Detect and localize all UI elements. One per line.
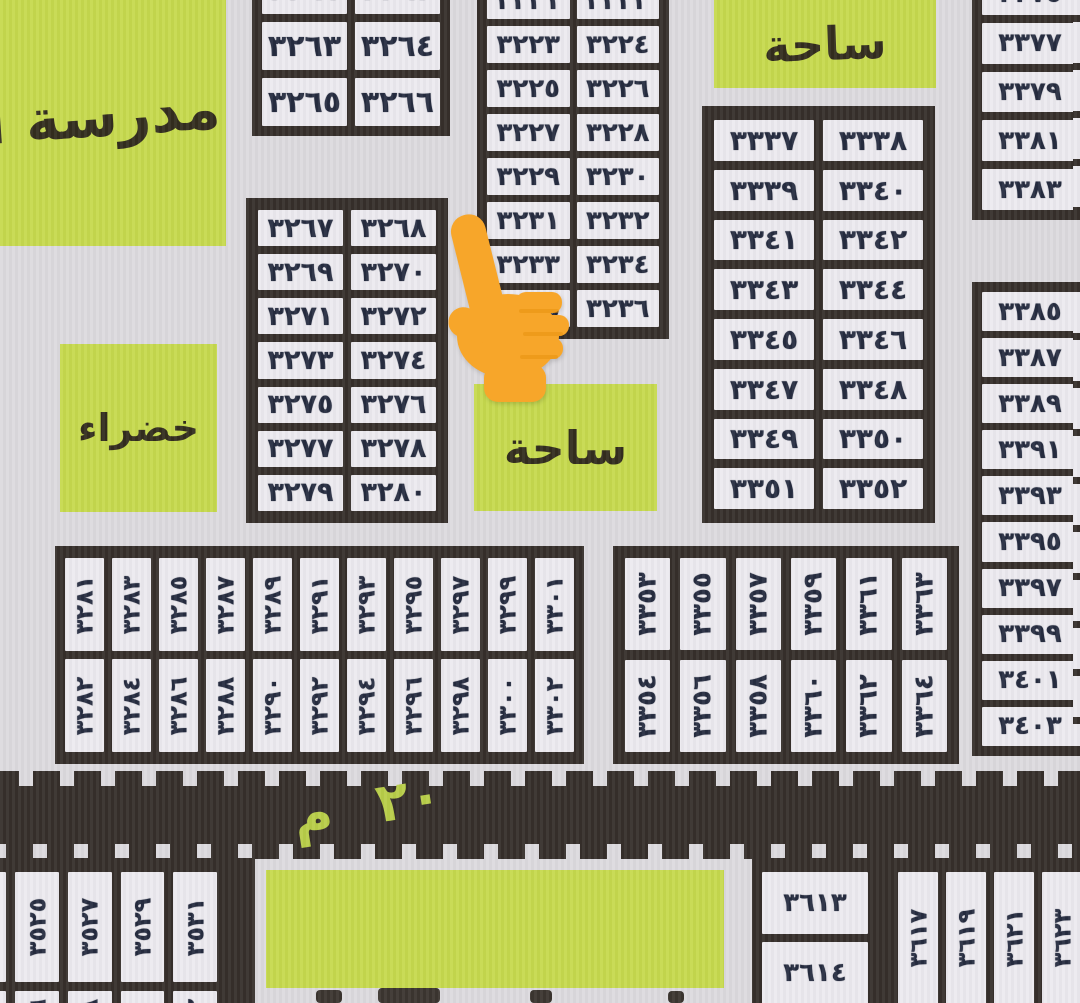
plot-number: ٣٢٧٢ [361,301,427,332]
plot-cell: ٣٣٤٠ [823,170,923,211]
plot-number: ٣٣٦٢ [854,674,884,737]
plot-cell: ٣٢٦٥ [262,78,347,126]
plot-number: ٣٢٨٢ [71,676,99,735]
plot-cell: ٣٣٩١ [982,430,1078,469]
plot-cell: ٣٤٠٣ [982,707,1078,746]
green-area-school: مدرسة اب [0,0,226,246]
plot-block-se-corner: ٣٦١٣ ٣٦١٤ ٣٦١٧ ٣٦١٩ ٣٦٢١ ٣٦٢٣ [752,858,1080,1003]
plot-cell: ٣٢٧٣ [258,342,343,378]
road-strip [0,786,1080,844]
plot-cell: ٣٢٣٦ [577,290,660,327]
plot-cell [0,991,6,1003]
plot-number: ٣٣٤٧ [730,373,798,406]
plot-number: ٣٢٨٣ [118,575,146,634]
plot-number: ٣٣٨٧ [998,343,1061,373]
plot-cell: ٣٣٥٥ [680,558,725,650]
plot-cell: ٣٢٩٨ [441,659,480,752]
plot-cell: ٣٢٣٢ [577,202,660,239]
green-area-bottom [266,870,724,988]
plot-cell: ٣٥٢٦ [15,991,59,1003]
plot-cell: ٣٢٦٤ [355,22,440,70]
plot-number: ٣٣٥٩ [799,572,829,635]
plot-number: ٣٣٤٤ [839,273,907,306]
plot-number: ٣٣٨٥ [998,297,1061,327]
plot-number: ٣٢٦٩ [268,257,334,288]
plot-cell: ٣٣٠١ [535,558,574,651]
plot-cell: ٣٣٧٧ [982,23,1078,64]
plot-cell: ٣٢٢٨ [577,114,660,151]
plot-number: ٣٢٨٤ [118,676,146,735]
plot-cell: ٣٦١٩ [946,872,986,1003]
plot-number: ٣٢٣٠ [586,162,649,192]
plot-number: ٣٣٥٣ [633,572,663,635]
plot-cell: ٣٣٥٣ [625,558,670,650]
plot-cell: ٣٢٨١ [65,558,104,651]
plot-cell: ٣٣٣٨ [823,120,923,161]
plot-cell: ٣٣٧٩ [982,72,1078,113]
plot-number: ٣٣٧٩ [998,77,1061,107]
plot-cell: ٣٢٨٥ [159,558,198,651]
plot-number: ٣٣٦٠ [799,674,829,737]
plot-cell: ٣٣٤٤ [823,269,923,310]
clipped-text-fragment [530,990,552,1003]
plot-number: ٣٢٣٤ [586,250,649,280]
green-area-square-top: ساحة [714,0,936,88]
plot-number: ٣٣٥١ [730,472,798,505]
plot-cell: ٣٣٥٦ [680,660,725,752]
plot-number: ٣٣٤٦ [839,323,907,356]
plot-number: ٣٣٥٦ [688,674,718,737]
plot-cell: ٣٣٣٩ [714,170,814,211]
plot-number: ٣٢٦٥ [268,85,341,120]
plot-cell: ٣٣٨١ [982,120,1078,161]
plot-number: ٣٣٨٣ [998,175,1061,205]
road-edge-dashes [0,771,1080,786]
plot-cell: ٣٥٢٩ [121,872,165,982]
plot-cell: ٣٢٩٦ [394,659,433,752]
plot-number: ٣٢٢٢ [586,0,649,16]
plot-number: ٣٣٣٨ [839,124,907,157]
plot-cell: ٣٢٨٦ [159,659,198,752]
plot-block-north: ٣٢٦١٣٢٦٢٣٢٦٣٣٢٦٤٣٢٦٥٣٢٦٦ [252,0,450,136]
plot-number: ٣٦٢٣ [1048,909,1076,968]
plot-number: ٣٦١٤ [783,958,846,988]
plot-number: ٣٣٤٢ [839,223,907,256]
plot-cell: ٣٣٦١ [846,558,891,650]
plot-number: ٣٢٢٥ [497,74,560,104]
plot-number: ٣٢٢٦ [586,74,649,104]
plot-number: ٣٣٩٣ [998,481,1061,511]
plot-cell: ٣٣٨٣ [982,169,1078,210]
plot-cell: ٣٢٢٥ [487,70,570,107]
plot-number: ٣٢٢٣ [497,30,560,60]
plot-cell: ٣٢٦٧ [258,210,343,246]
plot-number: ٣٢٩٩ [494,575,522,634]
plot-number: ٣٢٨٦ [165,676,193,735]
plot-cell: ٣٣٤٣ [714,269,814,310]
plot-number: ٣٣٥٢ [839,472,907,505]
square-top-label: ساحة [762,15,887,73]
plot-number: ٣٢٩٣ [353,575,381,634]
plot-number: ٣٢٨٨ [212,676,240,735]
plot-cell: ٣٢٢٦ [577,70,660,107]
plot-cell: ٣٦١٣ [762,872,868,934]
plot-number: ٣٢٧٦ [361,389,427,420]
plot-number: ٣٢٩٢ [306,676,334,735]
plot-number: ٣٣٩٩ [998,619,1061,649]
plot-cell: ٣٢٨٧ [206,558,245,651]
school-label: مدرسة اب [0,74,222,162]
plot-cell: ٣٢٦٣ [262,22,347,70]
green-area-khadra: خضراء [60,344,217,512]
plot-number: ٣٣٩٥ [998,527,1061,557]
plot-cell: ٣٦٢٣ [1042,872,1080,1003]
plot-number: ٣٣٥٠ [839,422,907,455]
plot-cell: ٣٣٤٩ [714,419,814,460]
plot-number: ٣٥٣١ [181,898,209,957]
plot-number: ٣٢٢٨ [586,118,649,148]
plot-number: ٣٣٦١ [854,572,884,635]
plot-number: ٣٣٥٤ [633,674,663,737]
plot-number: ٣٣٦٤ [909,674,939,737]
plot-number: ٣٢٧١ [268,301,334,332]
plot-cell: ٣٣٦٤ [902,660,947,752]
plot-cell: ٣٣٩٣ [982,476,1078,515]
plot-cell: ٣٢٢٧ [487,114,570,151]
plot-number: ٣٢٩٠ [259,676,287,735]
plot-number: ٣٥٢٨ [76,998,104,1003]
plot-cell: ٣٢٦٦ [355,78,440,126]
plot-cell: ٣٢٩٥ [394,558,433,651]
plot-number: ٣٥٢٦ [23,998,51,1003]
plot-number: ٣٣٩٧ [998,573,1061,603]
plot-cell: ٣٣٩٥ [982,522,1078,561]
plot-cell: ٣٣٥٨ [736,660,781,752]
plot-cell: ٣٣٤٢ [823,220,923,261]
plot-cell: ٣٣٥٤ [625,660,670,752]
plot-cell: ٣٢٨٠ [351,475,436,511]
plot-number: ٣٣٤٥ [730,323,798,356]
plot-number: ٣٣٤٣ [730,273,798,306]
plot-number: ٣٢٨٧ [212,575,240,634]
plot-cell: ٣٢٨٢ [65,659,104,752]
plot-cell: ٣٢٦٢ [355,0,440,14]
plot-number: ٣٢٣٢ [586,206,649,236]
plot-cell: ٣٢٧٨ [351,431,436,467]
plot-cell: ٣٣٦٢ [846,660,891,752]
plot-number: ٣٦١٩ [952,909,980,968]
plot-cell: ٣٢٩٤ [347,659,386,752]
plot-number: ٣٢٩٤ [353,676,381,735]
partial-cells-edge [1073,0,1080,210]
plot-number: ٣٢٧٤ [361,345,427,376]
plot-number: ٣٦١٣ [783,888,846,918]
plot-cell: ٣٢٧١ [258,298,343,334]
plot-number: ٣٦١٧ [904,909,932,968]
plot-cell: ٣٣٩٩ [982,615,1078,654]
plot-number: ٣٥٣٠ [128,998,156,1003]
plot-cell: ٣٤٠١ [982,661,1078,700]
plot-number: ٣٢٦٦ [361,85,434,120]
plot-cell: ٣٣٥٧ [736,558,781,650]
plot-block-far-east-main: ٣٣٨٥٣٣٨٧٣٣٨٩٣٣٩١٣٣٩٣٣٣٩٥٣٣٩٧٣٣٩٩٣٤٠١٣٤٠٣ [972,282,1080,756]
plot-number: ٣٤٠١ [998,665,1061,695]
plot-number: ٣٣٠٢ [541,676,569,735]
plot-cell: ٣٢٧٩ [258,475,343,511]
plot-cell: ٣٢٣٠ [577,158,660,195]
plot-cell: ٣٥٢٧ [68,872,112,982]
plot-cell: ٣٢٩٩ [488,558,527,651]
plot-number: ٣٥٢٧ [76,898,104,957]
plot-cell: ٣٣٥٩ [791,558,836,650]
plot-map: مدرسة اب ساحة خضراء ساحة ٣٢٦١٣٢٦٢٣٢٦٣٣٢٦… [0,0,1080,1003]
plot-cell: ٣٣٠٠ [488,659,527,752]
plot-cell: ٣٥٣٢ [173,991,217,1003]
plot-cell: ٣٦١٧ [898,872,938,1003]
clipped-text-fragment [668,991,684,1003]
plot-number: ٣٥٢٥ [23,898,51,957]
plot-cell [0,872,6,982]
plot-number: ٣٣٥٧ [743,572,773,635]
plot-block-far-east-top: ٣٣٧٥٣٣٧٧٣٣٧٩٣٣٨١٣٣٨٣ [972,0,1080,220]
plot-number: ٣٢٧٠ [361,257,427,288]
plot-number: ٣٢٨٥ [165,575,193,634]
plot-cell: ٣٢٩٠ [253,659,292,752]
plot-cell: ٣٢٩١ [300,558,339,651]
plot-number: ٣٢٨١ [71,575,99,634]
plot-number: ٣٢٩٧ [447,575,475,634]
plot-cell: ٣٢٦٩ [258,254,343,290]
plot-number: ٣٥٢٩ [128,898,156,957]
plot-cell: ٣٥٣١ [173,872,217,982]
khadra-label: خضراء [78,406,199,450]
square-center-label: ساحة [504,421,628,475]
plot-number: ٣٢٩٦ [400,676,428,735]
plot-cell: ٣٣٦٣ [902,558,947,650]
plot-number: ٣٢٦٤ [361,29,434,64]
plot-cell: ٣٥٣٠ [121,991,165,1003]
plot-cell: ٣٣٤٧ [714,369,814,410]
plot-cell: ٣٢٩٣ [347,558,386,651]
plot-number: ٣٢٧٧ [268,433,334,464]
plot-number: ٣٥٣٢ [181,998,209,1003]
plot-number: ٣٢٩١ [306,575,334,634]
plot-cell: ٣٣٤٨ [823,369,923,410]
plot-cell: ٣٣٧٥ [982,0,1078,15]
plot-cell: ٣٢٧٥ [258,387,343,423]
plot-cell: ٣٣٦٠ [791,660,836,752]
partial-cells-edge [1073,292,1080,746]
plot-cell: ٣٢٢٤ [577,26,660,63]
plot-number: ٣٣٩١ [998,435,1061,465]
plot-block-east: ٣٣٣٧٣٣٣٨٣٣٣٩٣٣٤٠٣٣٤١٣٣٤٢٣٣٤٣٣٣٤٤٣٣٤٥٣٣٤٦… [702,106,935,523]
plot-cell: ٣٣٠٢ [535,659,574,752]
plot-cell: ٣٢٨٤ [112,659,151,752]
plot-cell: ٣٣٤٥ [714,319,814,360]
plot-block-southwest: ٣٢٨١٣٢٨٣٣٢٨٥٣٢٨٧٣٢٨٩٣٢٩١٣٢٩٣٣٢٩٥٣٢٩٧٣٢٩٩… [55,546,584,764]
plot-number: ٣٣٨٩ [998,389,1061,419]
plot-cell: ٣٣٨٧ [982,338,1078,377]
plot-cell: ٣٣٩٧ [982,569,1078,608]
plot-number: ٣٢٦٧ [268,213,334,244]
plot-number: ٣٣٤٩ [730,422,798,455]
plot-number: ٣٢٦١ [268,0,341,8]
plot-number: ٣٢٧٨ [361,433,427,464]
pointing-finger-icon [420,212,580,402]
plot-number: ٣٢٦٣ [268,29,341,64]
plot-cell: ٣٢٨٣ [112,558,151,651]
plot-number: ٣٣٥٨ [743,674,773,737]
plot-number: ٣٢٨٩ [259,575,287,634]
plot-number: ٣٢٢٩ [497,162,560,192]
plot-cell: ٣٢٩٧ [441,558,480,651]
plot-number: ٣٢٩٨ [447,676,475,735]
plot-cell: ٣٣٥٠ [823,419,923,460]
plot-number: ٣٢٦٢ [361,0,434,8]
plot-cell: ٣٣٥١ [714,468,814,509]
plot-number: ٣٣٣٧ [730,124,798,157]
plot-number: ٣٣٧٥ [998,0,1061,9]
plot-number: ٣٢٩٥ [400,575,428,634]
plot-cell: ٣٣٣٧ [714,120,814,161]
plot-number: ٣٢٧٥ [268,389,334,420]
plot-number: ٣٣٣٩ [730,174,798,207]
plot-cell: ٣٥٢٥ [15,872,59,982]
plot-cell: ٣٣٤١ [714,220,814,261]
plot-cell: ٣٥٢٨ [68,991,112,1003]
plot-cell: ٣٣٨٥ [982,292,1078,331]
plot-block-west: ٣٢٦٧٣٢٦٨٣٢٦٩٣٢٧٠٣٢٧١٣٢٧٢٣٢٧٣٣٢٧٤٣٢٧٥٣٢٧٦… [246,198,448,523]
plot-cell: ٣٢٣٤ [577,246,660,283]
plot-number: ٣٢٦٨ [361,213,427,244]
plot-cell: ٣٢٢٢ [577,0,660,19]
plot-cell: ٣٢٢٣ [487,26,570,63]
plot-cell: ٣٦١٤ [762,942,868,1003]
clipped-text-fragment [378,988,440,1003]
plot-block-sw-corner: ٣٥٢٥٣٥٢٧٣٥٢٩٣٥٣١٣٥٢٦٣٥٢٨٣٥٣٠٣٥٣٢ [0,858,255,1003]
plot-number: ٣٦٢١ [1000,909,1028,968]
plot-cell: ٣٣٥٢ [823,468,923,509]
plot-cell: ٣٢٦١ [262,0,347,14]
plot-cell: ٣٣٨٩ [982,384,1078,423]
plot-cell: ٣٣٤٦ [823,319,923,360]
plot-number: ٣٢٢١ [497,0,560,16]
clipped-text-fragment [316,990,342,1003]
plot-cell: ٣٢٧٧ [258,431,343,467]
plot-number: ٣٣٤١ [730,223,798,256]
plot-number: ٣٣٦٣ [909,572,939,635]
plot-block-southeast: ٣٣٥٣٣٣٥٥٣٣٥٧٣٣٥٩٣٣٦١٣٣٦٣٣٣٥٤٣٣٥٦٣٣٥٨٣٣٦٠… [613,546,959,764]
plot-number: ٣٣٧٧ [998,28,1061,58]
plot-cell: ٣٢٩٢ [300,659,339,752]
road-edge-dashes [0,844,1080,859]
plot-cell: ٣٦٢١ [994,872,1034,1003]
plot-cell: ٣٢٢٩ [487,158,570,195]
plot-number: ٣٣٠٠ [494,676,522,735]
plot-number: ٣٢٢٤ [586,30,649,60]
plot-number: ٣٣٤٠ [839,174,907,207]
plot-number: ٣٢٢٧ [497,118,560,148]
plot-number: ٣٣٨١ [998,126,1061,156]
plot-cell: ٣٢٢١ [487,0,570,19]
plot-number: ٣٤٠٣ [998,711,1061,741]
plot-number: ٣٣٥٥ [688,572,718,635]
plot-number: ٣٣٤٨ [839,373,907,406]
plot-cell: ٣٢٨٨ [206,659,245,752]
plot-cell: ٣٢٨٩ [253,558,292,651]
green-area-square-center: ساحة [474,384,657,511]
plot-number: ٣٣٠١ [541,575,569,634]
plot-number: ٣٢٧٣ [268,345,334,376]
plot-number: ٣٢٣٦ [586,294,649,324]
plot-number: ٣٢٧٩ [268,477,334,508]
plot-number: ٣٢٨٠ [361,477,427,508]
